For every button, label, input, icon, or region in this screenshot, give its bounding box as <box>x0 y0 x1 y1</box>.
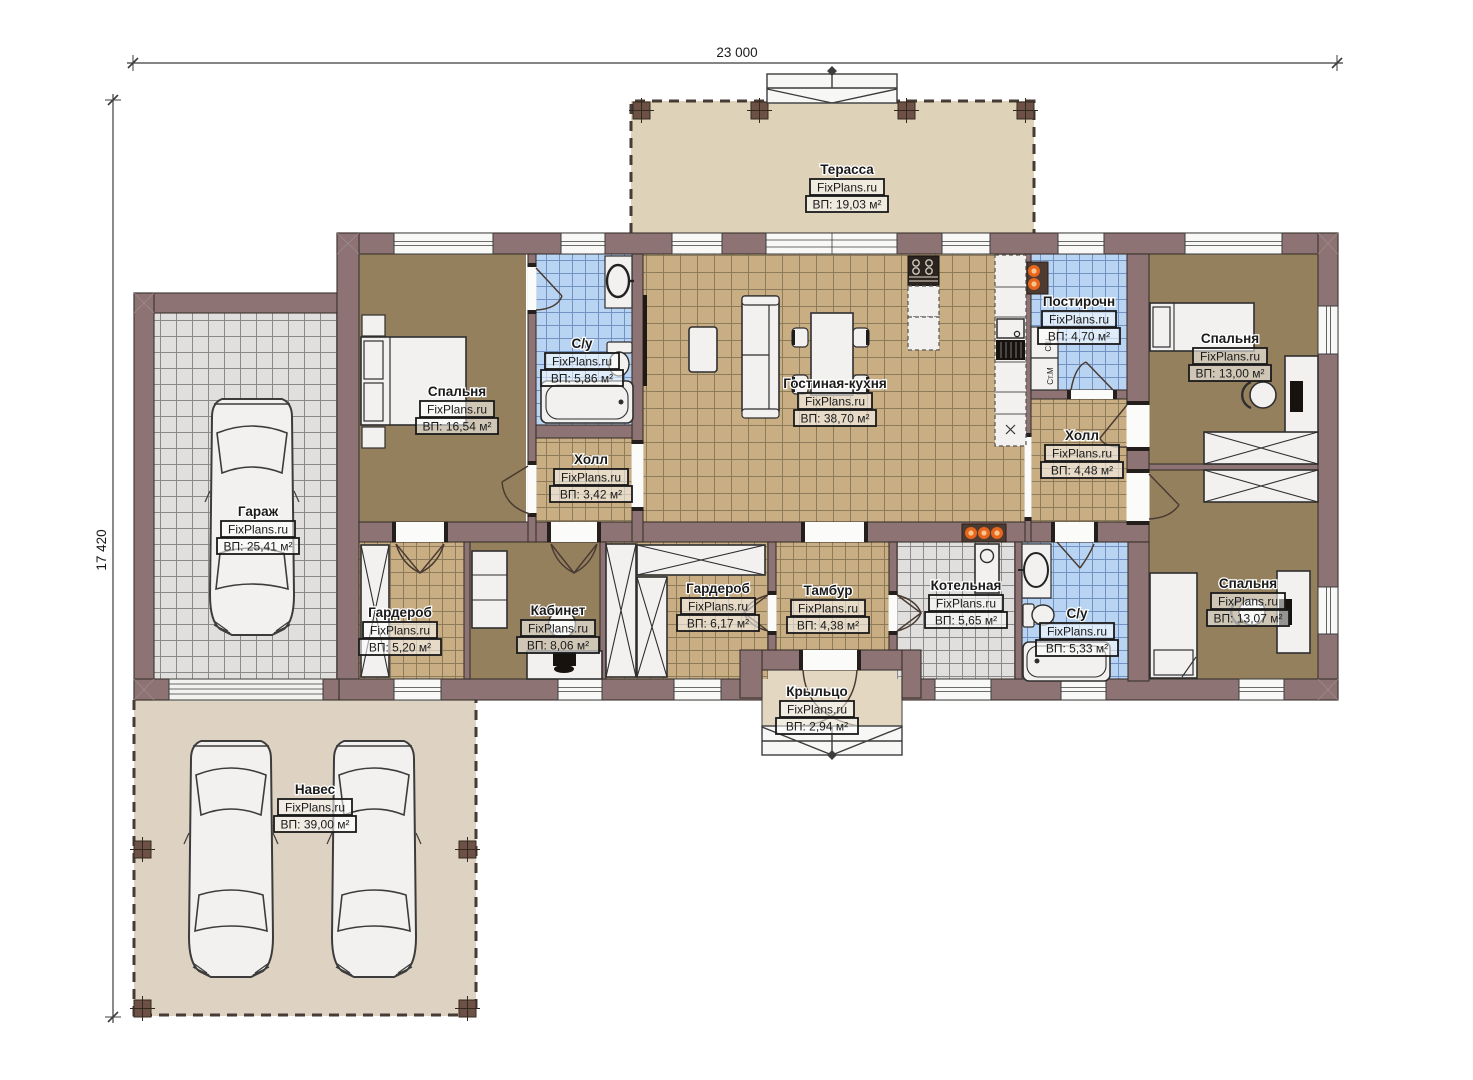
svg-text:FixPlans.ru: FixPlans.ru <box>688 600 748 614</box>
svg-text:Ст.М: Ст.М <box>1046 367 1055 385</box>
svg-text:ВП: 5,86 м²: ВП: 5,86 м² <box>551 372 613 386</box>
svg-text:ВП: 5,33 м²: ВП: 5,33 м² <box>1046 642 1108 656</box>
svg-text:С/у: С/у <box>571 336 593 351</box>
svg-text:FixPlans.ru: FixPlans.ru <box>228 523 288 537</box>
svg-text:ВП: 4,48 м²: ВП: 4,48 м² <box>1051 464 1113 478</box>
svg-text:Гостиная-кухня: Гостиная-кухня <box>783 376 886 391</box>
svg-text:Спальня: Спальня <box>1201 331 1259 346</box>
svg-text:ВП: 13,07 м²: ВП: 13,07 м² <box>1214 612 1283 626</box>
svg-text:ВП: 19,03 м²: ВП: 19,03 м² <box>813 198 882 212</box>
svg-text:ВП: 2,94 м²: ВП: 2,94 м² <box>786 720 848 734</box>
svg-text:ВП: 25,41 м²: ВП: 25,41 м² <box>224 540 293 554</box>
svg-text:ВП: 39,00 м²: ВП: 39,00 м² <box>281 818 350 832</box>
svg-text:Холл: Холл <box>574 452 608 467</box>
svg-text:FixPlans.ru: FixPlans.ru <box>798 602 858 616</box>
svg-text:ВП: 16,54 м²: ВП: 16,54 м² <box>423 420 492 434</box>
svg-text:Постирочн: Постирочн <box>1043 294 1115 309</box>
svg-text:23 000: 23 000 <box>716 45 757 60</box>
svg-text:Тамбур: Тамбур <box>804 583 853 598</box>
svg-text:Котельная: Котельная <box>931 578 1002 593</box>
svg-text:FixPlans.ru: FixPlans.ru <box>1052 447 1112 461</box>
svg-text:Навес: Навес <box>295 782 336 797</box>
svg-text:FixPlans.ru: FixPlans.ru <box>817 181 877 195</box>
svg-text:FixPlans.ru: FixPlans.ru <box>285 801 345 815</box>
svg-text:FixPlans.ru: FixPlans.ru <box>1200 350 1260 364</box>
svg-text:С/у: С/у <box>1066 606 1088 621</box>
svg-text:FixPlans.ru: FixPlans.ru <box>528 622 588 636</box>
svg-text:FixPlans.ru: FixPlans.ru <box>787 703 847 717</box>
svg-text:Терасса: Терасса <box>820 162 874 177</box>
svg-text:FixPlans.ru: FixPlans.ru <box>561 471 621 485</box>
svg-text:ВП: 5,20 м²: ВП: 5,20 м² <box>369 641 431 655</box>
svg-text:FixPlans.ru: FixPlans.ru <box>1047 625 1107 639</box>
svg-text:ВП: 6,17 м²: ВП: 6,17 м² <box>687 617 749 631</box>
svg-text:Холл: Холл <box>1065 428 1099 443</box>
svg-text:17 420: 17 420 <box>94 529 109 570</box>
svg-text:Спальня: Спальня <box>428 384 486 399</box>
svg-text:Спальня: Спальня <box>1219 576 1277 591</box>
svg-text:ВП: 5,65 м²: ВП: 5,65 м² <box>935 614 997 628</box>
svg-text:ВП: 4,70 м²: ВП: 4,70 м² <box>1048 330 1110 344</box>
svg-text:ВП: 4,38 м²: ВП: 4,38 м² <box>797 619 859 633</box>
svg-text:FixPlans.ru: FixPlans.ru <box>552 355 612 369</box>
svg-text:Гардероб: Гардероб <box>368 605 432 620</box>
svg-text:FixPlans.ru: FixPlans.ru <box>936 597 996 611</box>
svg-text:Кабинет: Кабинет <box>531 603 586 618</box>
svg-text:FixPlans.ru: FixPlans.ru <box>427 403 487 417</box>
svg-text:Крыльцо: Крыльцо <box>786 684 847 699</box>
svg-text:ВП: 8,06 м²: ВП: 8,06 м² <box>527 639 589 653</box>
svg-text:ВП: 38,70 м²: ВП: 38,70 м² <box>801 412 870 426</box>
svg-text:FixPlans.ru: FixPlans.ru <box>1218 595 1278 609</box>
svg-text:FixPlans.ru: FixPlans.ru <box>1049 313 1109 327</box>
svg-text:Гардероб: Гардероб <box>686 581 750 596</box>
svg-text:FixPlans.ru: FixPlans.ru <box>805 395 865 409</box>
svg-text:FixPlans.ru: FixPlans.ru <box>370 624 430 638</box>
svg-text:Гараж: Гараж <box>238 504 279 519</box>
svg-text:ВП: 3,42 м²: ВП: 3,42 м² <box>560 488 622 502</box>
svg-text:ВП: 13,00 м²: ВП: 13,00 м² <box>1196 367 1265 381</box>
